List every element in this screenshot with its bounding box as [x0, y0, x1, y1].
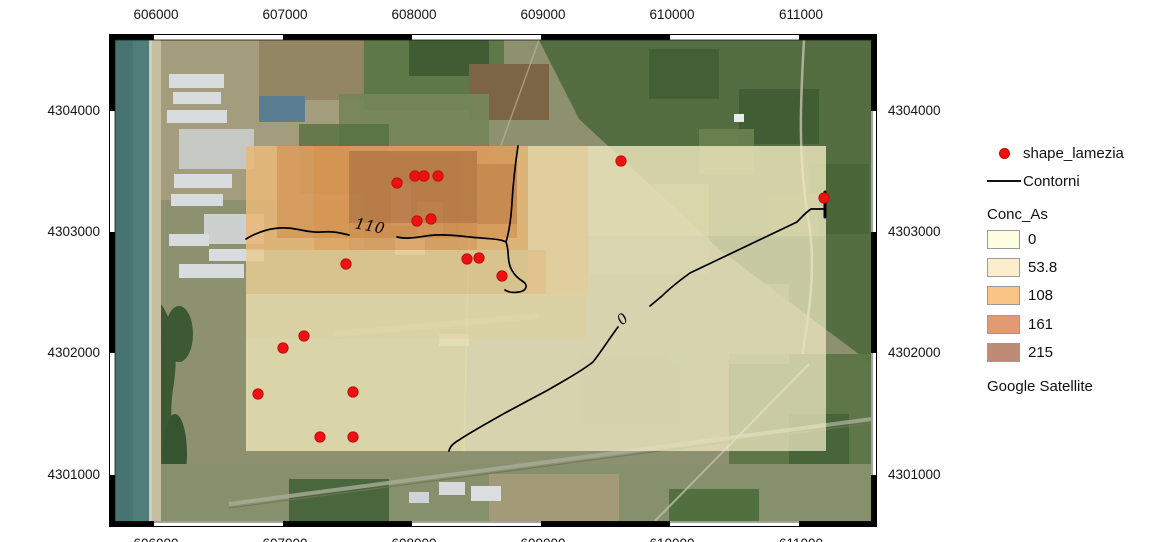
axis-tick-right: 4304000 — [888, 102, 952, 119]
sample-point — [278, 343, 288, 353]
legend-item-contorni: Contorni — [985, 167, 1080, 195]
axis-tick-top: 606000 — [124, 6, 188, 23]
class-label: 215 — [1028, 344, 1053, 361]
legend-group-title: Conc_As — [987, 200, 1048, 228]
legend-class-row: 108 — [987, 281, 1053, 309]
axis-tick-bottom: 608000 — [382, 535, 446, 542]
class-label: 161 — [1028, 316, 1053, 333]
axis-tick-top: 611000 — [769, 6, 833, 23]
sample-point — [462, 254, 472, 264]
axis-tick-bottom: 610000 — [640, 535, 704, 542]
class-label: 108 — [1028, 287, 1053, 304]
legend-item-shape-lamezia: shape_lamezia — [985, 139, 1124, 167]
map-layout-page: 606000 607000 608000 609000 610000 61100… — [0, 0, 1176, 542]
sample-point — [433, 171, 443, 181]
sample-point — [616, 156, 626, 166]
sample-point — [315, 432, 325, 442]
legend-class-row: 0 — [987, 225, 1036, 253]
sample-point — [497, 271, 507, 281]
class-label: 0 — [1028, 231, 1036, 248]
map-viewport[interactable]: 110 0 — [109, 34, 877, 527]
axis-tick-left: 4301000 — [36, 466, 100, 483]
sample-point — [348, 387, 358, 397]
sample-point — [819, 193, 829, 203]
point-symbol-icon — [999, 148, 1010, 159]
map-canvas: 110 0 — [109, 34, 877, 527]
sample-point — [392, 178, 402, 188]
axis-tick-top: 607000 — [253, 6, 317, 23]
sample-point — [412, 216, 422, 226]
sample-point — [419, 171, 429, 181]
legend-class-row: 215 — [987, 338, 1053, 366]
axis-tick-left: 4303000 — [36, 223, 100, 240]
class-label: 53.8 — [1028, 259, 1057, 276]
sample-point — [474, 253, 484, 263]
axis-tick-bottom: 606000 — [124, 535, 188, 542]
sample-point — [299, 331, 309, 341]
axis-tick-right: 4301000 — [888, 466, 952, 483]
axis-tick-top: 609000 — [511, 6, 575, 23]
axis-tick-bottom: 609000 — [511, 535, 575, 542]
axis-tick-right: 4302000 — [888, 344, 952, 361]
legend-label: Contorni — [1023, 173, 1080, 190]
conc-as-overlay — [246, 146, 826, 451]
axis-tick-bottom: 611000 — [769, 535, 833, 542]
legend-class-row: 53.8 — [987, 253, 1057, 281]
class-swatch — [987, 230, 1020, 249]
class-swatch — [987, 258, 1020, 277]
axis-tick-left: 4304000 — [36, 102, 100, 119]
legend-class-row: 161 — [987, 310, 1053, 338]
axis-tick-top: 610000 — [640, 6, 704, 23]
class-swatch — [987, 286, 1020, 305]
line-symbol-icon — [987, 180, 1021, 182]
sample-point — [341, 259, 351, 269]
legend-label: shape_lamezia — [1023, 145, 1124, 162]
axis-tick-left: 4302000 — [36, 344, 100, 361]
sample-point — [253, 389, 263, 399]
axis-tick-top: 608000 — [382, 6, 446, 23]
axis-tick-right: 4303000 — [888, 223, 952, 240]
class-swatch — [987, 315, 1020, 334]
sample-point — [348, 432, 358, 442]
legend-basemap-label: Google Satellite — [987, 372, 1093, 400]
axis-tick-bottom: 607000 — [253, 535, 317, 542]
sample-point — [426, 214, 436, 224]
class-swatch — [987, 343, 1020, 362]
